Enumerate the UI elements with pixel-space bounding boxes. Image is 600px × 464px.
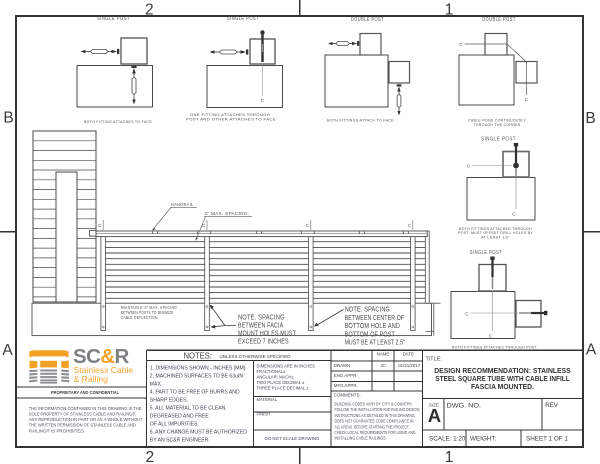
- svg-text:RAILING® IS PROHIBITED.: RAILING® IS PROHIBITED.: [29, 428, 85, 433]
- svg-text:SINGLE POST: SINGLE POST: [97, 16, 130, 22]
- svg-text:INSTALLING CABLE RAILINGS.: INSTALLING CABLE RAILINGS.: [335, 436, 387, 441]
- svg-text:2: 2: [145, 1, 154, 18]
- svg-text:C: C: [489, 334, 493, 339]
- svg-text:DIMENSIONS ARE IN INCHES: DIMENSIONS ARE IN INCHES: [257, 364, 316, 369]
- svg-text:DEGREASED AND FREE: DEGREASED AND FREE: [150, 414, 209, 420]
- svg-text:C: C: [408, 223, 411, 228]
- svg-text:B: B: [585, 110, 595, 127]
- svg-text:SCALE: 1:20: SCALE: 1:20: [429, 435, 466, 442]
- svg-text:A: A: [586, 342, 597, 359]
- svg-text:BOTH FITTING ATTACHES TO FACE: BOTH FITTING ATTACHES TO FACE: [84, 119, 152, 124]
- svg-text:CHECK LOCAL REQUIREMENTS FOR U: CHECK LOCAL REQUIREMENTS FOR USING AND: [335, 430, 416, 435]
- svg-text:BETWEEN FACIA: BETWEEN FACIA: [238, 322, 283, 329]
- svg-text:THE WRITTEN PERMISSION OF STAI: THE WRITTEN PERMISSION OF STAINLESS CABL…: [29, 423, 136, 428]
- svg-text:C: C: [465, 312, 469, 317]
- svg-text:SINGLE POST: SINGLE POST: [470, 250, 503, 256]
- svg-text:1. DIMENSIONS SHOWN - INCHES [: 1. DIMENSIONS SHOWN - INCHES [MM].: [150, 366, 247, 372]
- svg-text:JC: JC: [380, 363, 385, 368]
- svg-text:INSTRUCTIONS AS DETAILED IN TH: INSTRUCTIONS AS DETAILED IN THIS DRAWING…: [335, 413, 416, 418]
- svg-text:TWO PLACE DECIMAL ±: TWO PLACE DECIMAL ±: [257, 380, 305, 385]
- svg-text:COMMENTS:: COMMENTS:: [334, 392, 361, 397]
- svg-text:BY AN SC&R ENGINEER.: BY AN SC&R ENGINEER.: [150, 438, 210, 444]
- svg-text:EXCEED 7 INCHES: EXCEED 7 INCHES: [238, 338, 289, 345]
- svg-text:DRAWN: DRAWN: [334, 363, 350, 368]
- svg-text:BOTTOM OF POST: BOTTOM OF POST: [345, 332, 396, 339]
- svg-text:MATERIAL: MATERIAL: [257, 397, 278, 402]
- svg-text:B: B: [3, 110, 13, 127]
- svg-text:6. ANY CHANGE MUST BE AUTHORIZ: 6. ANY CHANGE MUST BE AUTHORIZED: [150, 430, 247, 436]
- svg-text:& Railing: & Railing: [74, 374, 109, 384]
- svg-text:5. ALL MATERIAL TO BE CLEAN.: 5. ALL MATERIAL TO BE CLEAN.: [150, 406, 227, 412]
- svg-text:ANY REPRODUCTION IN PART OR AS: ANY REPRODUCTION IN PART OR AS A WHOLE W…: [29, 417, 143, 422]
- svg-text:DOES NOT GUARANTEE CODE COMPLI: DOES NOT GUARANTEE CODE COMPLIANCE IN: [335, 419, 414, 424]
- svg-text:ENG APPR.: ENG APPR.: [334, 373, 358, 378]
- svg-text:AT LEAST 1/2": AT LEAST 1/2": [481, 234, 510, 239]
- svg-text:FRACTIONAL±: FRACTIONAL±: [257, 369, 287, 374]
- svg-text:ALL AREAS. BEFORE STARTING THE: ALL AREAS. BEFORE STARTING THE PROJECT,: [335, 424, 410, 429]
- svg-text:MOUNT HOLES MUST: MOUNT HOLES MUST: [238, 330, 296, 337]
- svg-text:BOTTOM HOLE AND: BOTTOM HOLE AND: [345, 323, 400, 330]
- svg-text:POST AND OTHER ATTACHES TO FAC: POST AND OTHER ATTACHES TO FACE: [186, 117, 276, 122]
- svg-text:C: C: [525, 97, 529, 102]
- svg-text:ANGULAR: MACH±: ANGULAR: MACH±: [257, 375, 295, 380]
- svg-text:TITLE:: TITLE:: [426, 357, 442, 363]
- svg-text:DOUBLE POST: DOUBLE POST: [351, 17, 384, 23]
- svg-text:STEEL SQUARE TUBE WITH CABLE I: STEEL SQUARE TUBE WITH CABLE INFILL: [435, 375, 570, 383]
- svg-text:OF ALL IMPURITIES.: OF ALL IMPURITIES.: [150, 422, 199, 428]
- svg-text:2. MACHINED SURFACES TO BE 63u: 2. MACHINED SURFACES TO BE 63uIN: [150, 374, 244, 380]
- svg-text:C: C: [306, 223, 309, 228]
- svg-text:SOLE PROPERTY OF STAINLESS CAB: SOLE PROPERTY OF STAINLESS CABLE AND RAI…: [29, 412, 137, 417]
- svg-text:WEIGHT:: WEIGHT:: [470, 435, 496, 442]
- svg-text:FOLLOW THE INSTALLATION AND RA: FOLLOW THE INSTALLATION AND RAILING DESI…: [335, 407, 420, 412]
- svg-text:DWG. NO.: DWG. NO.: [447, 403, 482, 410]
- svg-text:REV: REV: [545, 402, 559, 409]
- svg-text:C: C: [459, 42, 463, 47]
- svg-text:C: C: [98, 223, 101, 228]
- svg-text:SHEET 1 OF 1: SHEET 1 OF 1: [526, 435, 568, 442]
- svg-text:A: A: [428, 405, 441, 426]
- svg-text:MAX.: MAX.: [150, 382, 162, 388]
- svg-text:4. PART TO BE FREE OF BURRS AN: 4. PART TO BE FREE OF BURRS AND: [150, 390, 240, 396]
- svg-text:MFG APPR.: MFG APPR.: [334, 383, 358, 388]
- svg-text:FINISH: FINISH: [257, 411, 271, 416]
- svg-text:NOTE. SPACING: NOTE. SPACING: [238, 314, 285, 321]
- svg-text:NAME: NAME: [377, 351, 390, 356]
- svg-text:01/31/2017: 01/31/2017: [398, 363, 421, 368]
- svg-text:3" MAX. SPACING.: 3" MAX. SPACING.: [205, 211, 250, 216]
- svg-text:BETWEEN CENTER OF: BETWEEN CENTER OF: [345, 315, 405, 322]
- svg-text:PROPRIETARY AND CONFIDENTIAL: PROPRIETARY AND CONFIDENTIAL: [51, 390, 119, 395]
- svg-text:THROUGH THE CORNER: THROUGH THE CORNER: [474, 122, 521, 127]
- svg-text:NOTES:: NOTES:: [184, 351, 213, 361]
- svg-text:CABLE DEFLECTION: CABLE DEFLECTION: [121, 315, 158, 320]
- svg-text:SINGLE POST: SINGLE POST: [227, 16, 259, 22]
- svg-text:A: A: [2, 342, 13, 359]
- svg-text:SHARP EDGES.: SHARP EDGES.: [150, 398, 188, 404]
- svg-text:DATE: DATE: [403, 351, 414, 356]
- svg-text:C: C: [512, 212, 516, 217]
- svg-text:HANDRAIL: HANDRAIL: [171, 202, 194, 207]
- svg-text:DESIGN RECOMMENDATION: STAINLE: DESIGN RECOMMENDATION: STAINLESS: [434, 367, 571, 375]
- svg-text:2: 2: [145, 449, 154, 464]
- svg-text:UNLESS OTHERWISE SPECIFIED: UNLESS OTHERWISE SPECIFIED: [220, 354, 292, 359]
- svg-text:C: C: [467, 164, 471, 169]
- svg-text:SINGLE POST: SINGLE POST: [481, 137, 516, 143]
- svg-text:DOUBLE POST: DOUBLE POST: [482, 17, 516, 23]
- svg-text:BUILDING CODES VARY BY CITY &: BUILDING CODES VARY BY CITY & COUNTRY.: [335, 402, 413, 407]
- svg-text:1: 1: [445, 449, 454, 464]
- svg-text:FASCIA MOUNTED.: FASCIA MOUNTED.: [471, 383, 534, 391]
- svg-text:MUST BE AT LEAST 2.5": MUST BE AT LEAST 2.5": [345, 340, 406, 347]
- svg-text:BOTH FITTINGS ATTACHES THROUGH: BOTH FITTINGS ATTACHES THROUGH POST: [452, 344, 537, 349]
- svg-text:NOTE. SPACING: NOTE. SPACING: [345, 307, 390, 314]
- svg-text:1: 1: [445, 1, 454, 18]
- svg-text:THE INFORMATION CONTAINED IN T: THE INFORMATION CONTAINED IN THIS DRAWIN…: [29, 406, 142, 411]
- svg-text:THREE PLACE DECIMAL ±: THREE PLACE DECIMAL ±: [257, 386, 310, 391]
- svg-text:C: C: [261, 98, 265, 103]
- svg-text:DO NOT SCALE DRAWING: DO NOT SCALE DRAWING: [265, 436, 320, 441]
- svg-text:BOTH FITTINGS ATTACH TO FACE: BOTH FITTINGS ATTACH TO FACE: [327, 118, 394, 123]
